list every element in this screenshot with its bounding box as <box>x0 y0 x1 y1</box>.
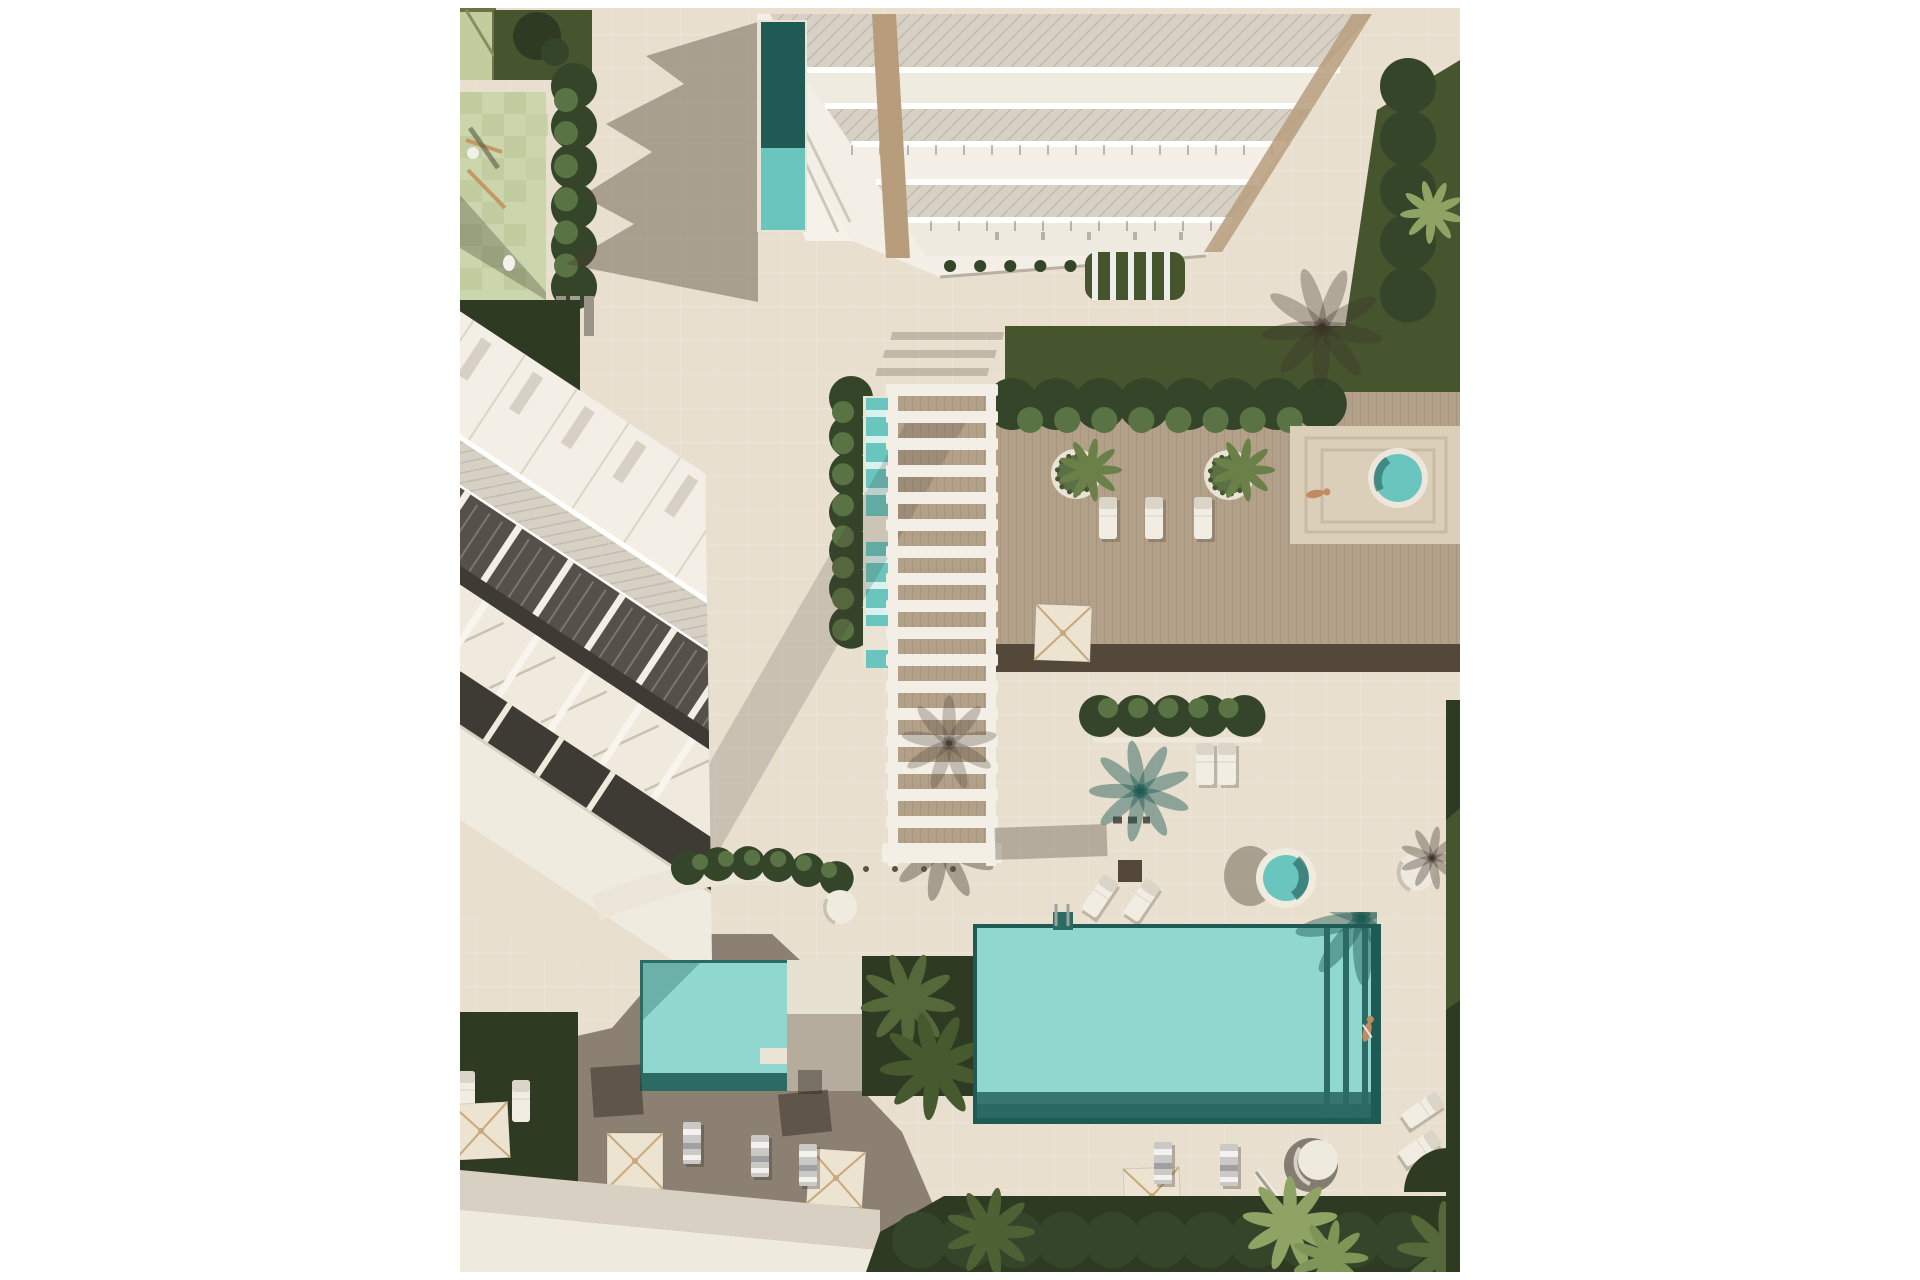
sun-lounger <box>1099 497 1120 542</box>
small-figure <box>503 255 515 271</box>
towel-lounger <box>1154 1142 1175 1187</box>
towel-lounger <box>751 1135 772 1180</box>
sun-lounger <box>1194 497 1215 542</box>
pergola-shadow <box>875 332 1004 376</box>
square-umbrella <box>607 1133 663 1189</box>
shade-sail-shadow <box>994 824 1107 860</box>
sun-lounger <box>1145 497 1166 542</box>
towel-lounger <box>683 1122 704 1167</box>
sun-lounger <box>512 1080 533 1125</box>
side-table <box>1118 860 1142 882</box>
plunge-pool-platform <box>1290 426 1460 544</box>
umbrella-shadow <box>590 1064 643 1117</box>
sun-lounger <box>1196 743 1217 788</box>
square-umbrella <box>452 1102 511 1161</box>
umbrella-shadow <box>778 1090 832 1137</box>
bench-plank <box>584 296 594 336</box>
toy-dome <box>467 147 479 159</box>
square-umbrella <box>1034 604 1092 662</box>
aerial-render <box>0 0 1920 1280</box>
hot-tub <box>1256 848 1316 908</box>
round-daybed <box>823 890 857 924</box>
towel-lounger <box>1220 1144 1241 1189</box>
tree-canopy <box>541 38 569 66</box>
tower-pool-strip <box>757 20 807 232</box>
sun-lounger <box>1218 743 1239 788</box>
palm-shadow <box>1552 652 1705 806</box>
palm-shadow-on-pool <box>1538 496 1713 671</box>
towel-lounger <box>799 1144 820 1189</box>
render-canvas <box>0 0 1920 1280</box>
